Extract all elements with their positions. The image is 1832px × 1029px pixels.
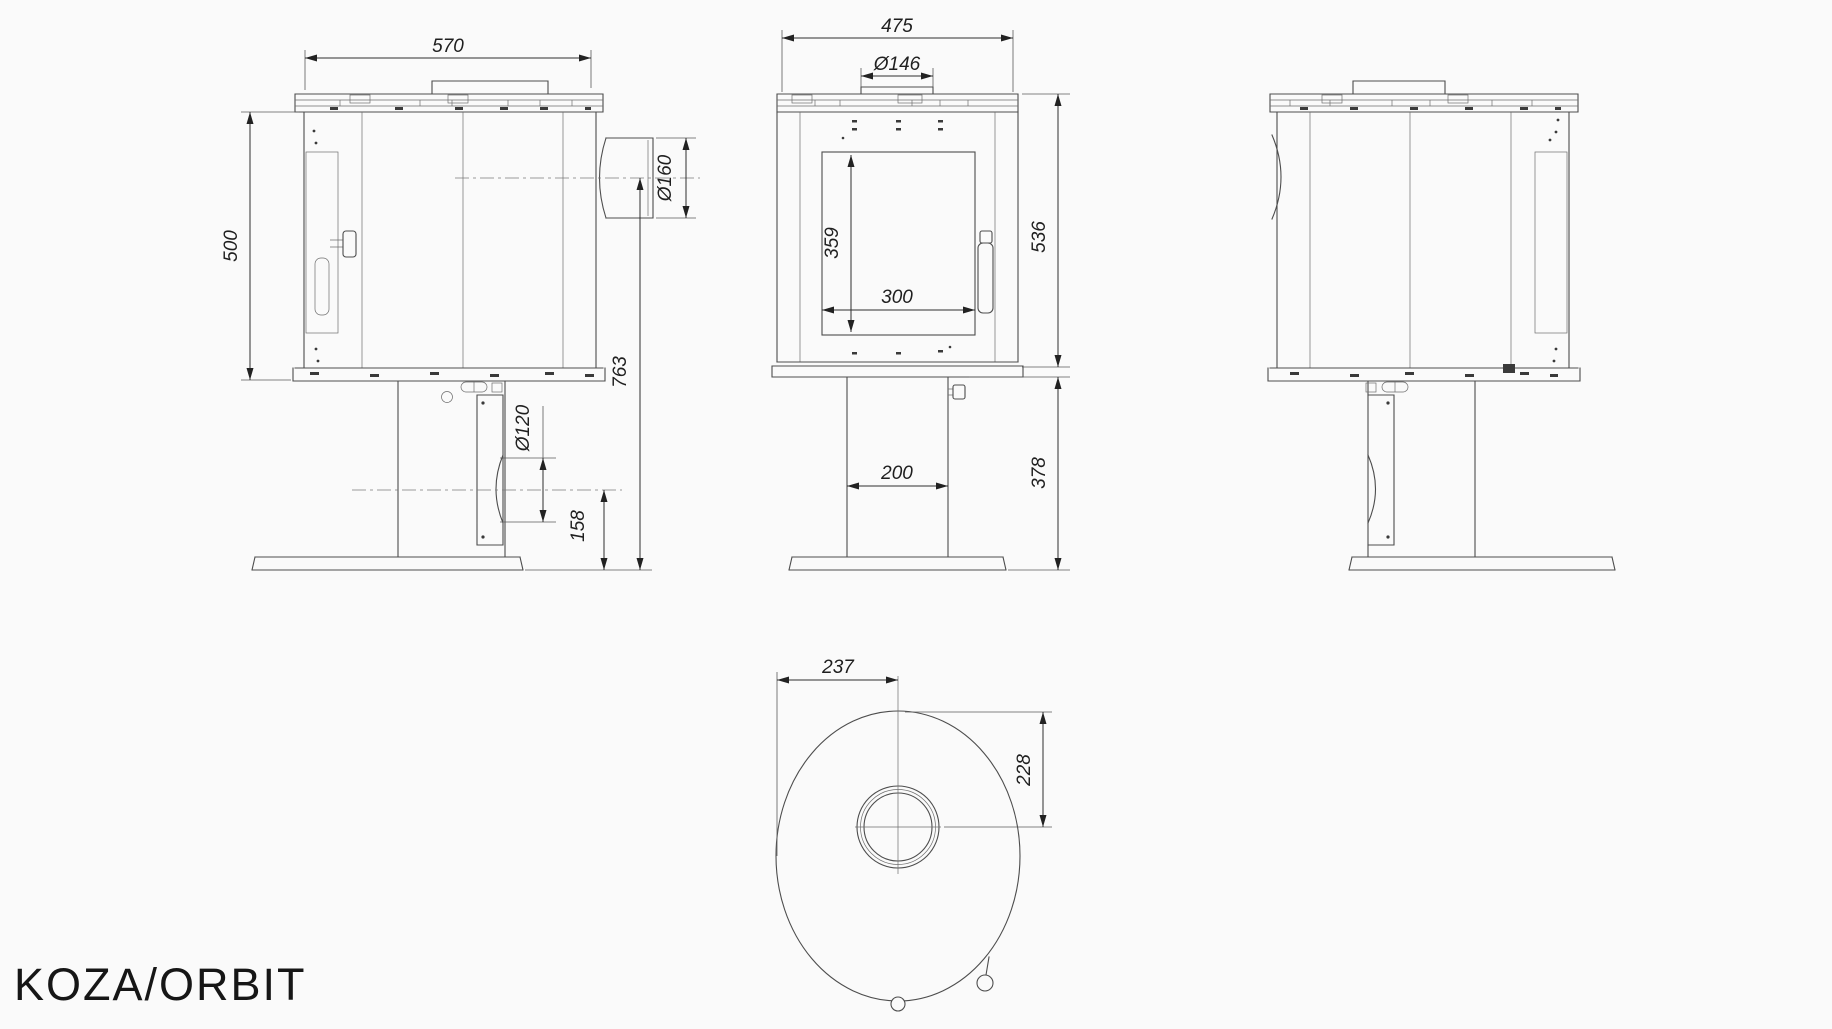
dimension-height-500: 500 bbox=[221, 112, 299, 380]
dim-label-o120: Ø120 bbox=[513, 404, 534, 452]
base-plate bbox=[1349, 557, 1615, 570]
pedestal-knob bbox=[953, 385, 965, 399]
panel-seams bbox=[1310, 112, 1511, 368]
base-plate bbox=[252, 557, 523, 570]
dimension-collar-diameter: Ø146 bbox=[861, 54, 933, 87]
dim-label-228: 228 bbox=[1014, 754, 1035, 787]
body-sides bbox=[1277, 112, 1569, 368]
dimension-pedestal-height-378: 378 bbox=[969, 377, 1070, 570]
base-plate bbox=[789, 557, 1006, 570]
door-latch-handle bbox=[343, 231, 356, 257]
dim-label-200: 200 bbox=[880, 463, 913, 484]
dim-label-o160: Ø160 bbox=[655, 154, 676, 202]
dim-label-158: 158 bbox=[568, 510, 589, 542]
plate-cutout bbox=[1448, 95, 1468, 103]
flue-collar bbox=[861, 87, 933, 94]
bottom-knob bbox=[891, 997, 905, 1011]
top-view: 237 228 bbox=[776, 657, 1052, 1011]
body-sides bbox=[777, 112, 1018, 362]
dim-label-300: 300 bbox=[881, 287, 913, 308]
dim-label-378: 378 bbox=[1029, 457, 1050, 489]
dim-label-o146: Ø146 bbox=[873, 54, 921, 75]
rear-bracket-plate bbox=[477, 395, 503, 545]
stove-technical-drawing: 570 500 Ø160 763 Ø120 158 bbox=[0, 0, 1832, 1029]
dim-label-475: 475 bbox=[881, 16, 913, 37]
pedestal-column bbox=[1368, 381, 1475, 557]
dim-label-763: 763 bbox=[610, 356, 631, 388]
plate-cutout bbox=[792, 95, 812, 103]
dimension-glass-width-300: 300 bbox=[822, 287, 975, 310]
pedestal-hole bbox=[442, 392, 453, 403]
plate-cutout bbox=[1322, 95, 1342, 103]
dim-label-570: 570 bbox=[432, 36, 464, 57]
plate-cutout bbox=[350, 95, 370, 103]
right-side-view bbox=[1268, 81, 1615, 570]
door-recess-panel bbox=[1535, 152, 1567, 333]
bottom-plate bbox=[293, 368, 605, 381]
bottom-plate bbox=[772, 362, 1023, 377]
door-handle bbox=[978, 243, 993, 313]
dimension-body-height-536: 536 bbox=[1022, 94, 1070, 367]
axis-lines bbox=[855, 676, 941, 874]
screw-marks bbox=[1290, 107, 1561, 377]
bottom-plate bbox=[1268, 368, 1580, 381]
dimension-hole-axis-height-158: 158 bbox=[568, 490, 604, 570]
dim-label-237: 237 bbox=[821, 657, 855, 678]
air-control-slot bbox=[315, 258, 329, 315]
dim-label-536: 536 bbox=[1029, 221, 1050, 253]
dimension-pedestal-width-200: 200 bbox=[847, 463, 948, 486]
technical-drawing-page: 570 500 Ø160 763 Ø120 158 bbox=[0, 0, 1832, 1029]
drawing-title: KOZA/ORBIT bbox=[14, 959, 307, 1010]
pedestal-column bbox=[398, 381, 505, 557]
left-side-view: 570 500 Ø160 763 Ø120 158 bbox=[221, 36, 700, 570]
screw-marks bbox=[842, 120, 952, 355]
screw-marks bbox=[310, 107, 594, 377]
door-recess-panel bbox=[306, 152, 338, 333]
door-hinge bbox=[980, 231, 992, 243]
dim-label-500: 500 bbox=[221, 230, 242, 262]
plate-cutout bbox=[448, 95, 468, 103]
top-plate bbox=[777, 94, 1018, 112]
top-handle-bump bbox=[1353, 81, 1445, 94]
rear-bracket-plate bbox=[1368, 395, 1394, 545]
plate-cutout bbox=[898, 95, 922, 103]
body-sides bbox=[304, 112, 596, 368]
pedestal-slot-small bbox=[492, 383, 502, 392]
panel-seams bbox=[362, 112, 563, 368]
dimension-glass-height-359: 359 bbox=[822, 155, 851, 332]
dimension-237: 237 bbox=[777, 657, 898, 856]
handle-end-knob bbox=[977, 975, 993, 991]
top-handle-bump bbox=[432, 81, 548, 94]
dimension-rear-hole-diameter: Ø120 bbox=[500, 404, 556, 522]
dim-label-359: 359 bbox=[822, 227, 843, 259]
front-view: 475 Ø146 359 300 536 200 378 bbox=[772, 16, 1070, 570]
